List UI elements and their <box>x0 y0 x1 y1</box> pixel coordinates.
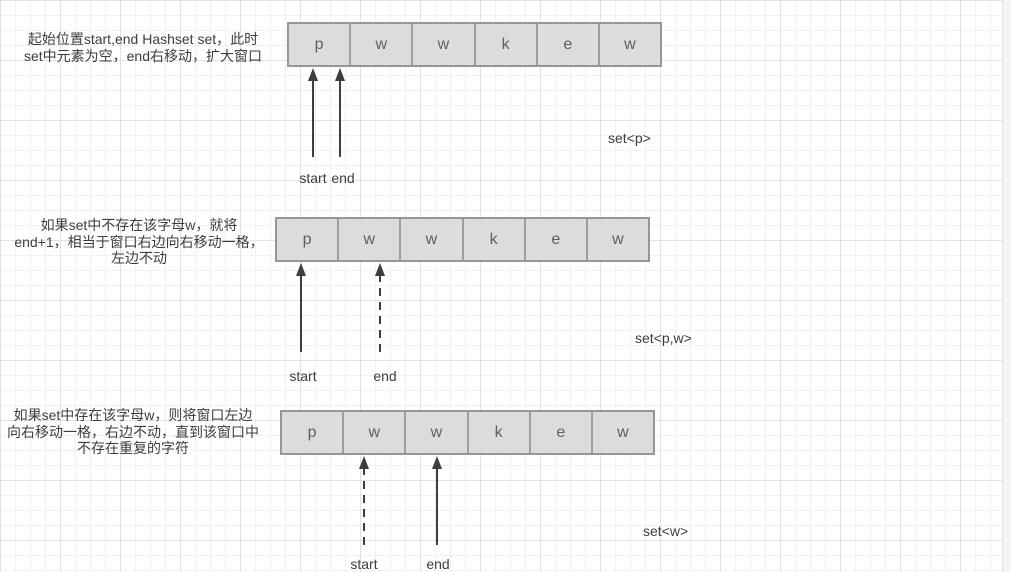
description-line: end+1，相当于窗口右边向右移动一格， <box>3 234 275 251</box>
start-pointer-arrow-dashed <box>356 456 372 545</box>
section2-description: 如果set中不存在该字母w，就将 end+1，相当于窗口右边向右移动一格， 左边… <box>3 217 275 267</box>
start-pointer-label: start <box>350 556 377 572</box>
description-line: set中元素为空，end右移动，扩大窗口 <box>8 48 278 65</box>
array-cell: e <box>538 24 600 65</box>
description-line: 不存在重复的字符 <box>0 440 266 457</box>
scrollbar-track[interactable] <box>1002 0 1011 572</box>
array-cell: w <box>588 219 648 260</box>
section2-char-array: p w w k e w <box>275 217 650 262</box>
array-cell: w <box>600 24 660 65</box>
array-cell: w <box>344 412 406 453</box>
section1-set-contents: set<p> <box>608 130 651 146</box>
array-cell: k <box>476 24 538 65</box>
array-cell: w <box>401 219 463 260</box>
array-cell: w <box>339 219 401 260</box>
section1-description: 起始位置start,end Hashset set，此时 set中元素为空，en… <box>8 31 278 64</box>
array-cell: w <box>413 24 475 65</box>
description-line: 如果set中不存在该字母w，就将 <box>3 217 275 234</box>
section3-set-contents: set<w> <box>643 523 688 539</box>
array-cell: k <box>464 219 526 260</box>
array-cell: w <box>351 24 413 65</box>
start-pointer-label: start <box>289 368 316 384</box>
array-cell: e <box>526 219 588 260</box>
end-pointer-label: end <box>331 170 354 186</box>
description-line: 向右移动一格，右边不动，直到该窗口中 <box>0 424 266 441</box>
array-cell: k <box>469 412 531 453</box>
start-pointer-arrow <box>305 68 321 157</box>
end-pointer-arrow-dashed <box>372 263 388 352</box>
array-cell: p <box>277 219 339 260</box>
section3-char-array: p w w k e w <box>280 410 655 455</box>
end-pointer-arrow <box>429 456 445 545</box>
end-pointer-label: end <box>426 556 449 572</box>
array-cell: p <box>282 412 344 453</box>
array-cell: w <box>406 412 468 453</box>
section2-set-contents: set<p,w> <box>635 330 692 346</box>
section3-description: 如果set中存在该字母w，则将窗口左边 向右移动一格，右边不动，直到该窗口中 不… <box>0 407 266 457</box>
section1-char-array: p w w k e w <box>287 22 662 67</box>
description-line: 左边不动 <box>3 250 275 267</box>
description-line: 起始位置start,end Hashset set，此时 <box>8 31 278 48</box>
start-pointer-arrow <box>293 263 309 352</box>
end-pointer-label: end <box>373 368 396 384</box>
array-cell: p <box>289 24 351 65</box>
end-pointer-arrow <box>332 68 348 157</box>
array-cell: e <box>531 412 593 453</box>
array-cell: w <box>593 412 653 453</box>
description-line: 如果set中存在该字母w，则将窗口左边 <box>0 407 266 424</box>
start-pointer-label: start <box>299 170 326 186</box>
diagram-canvas: 起始位置start,end Hashset set，此时 set中元素为空，en… <box>0 0 1011 572</box>
